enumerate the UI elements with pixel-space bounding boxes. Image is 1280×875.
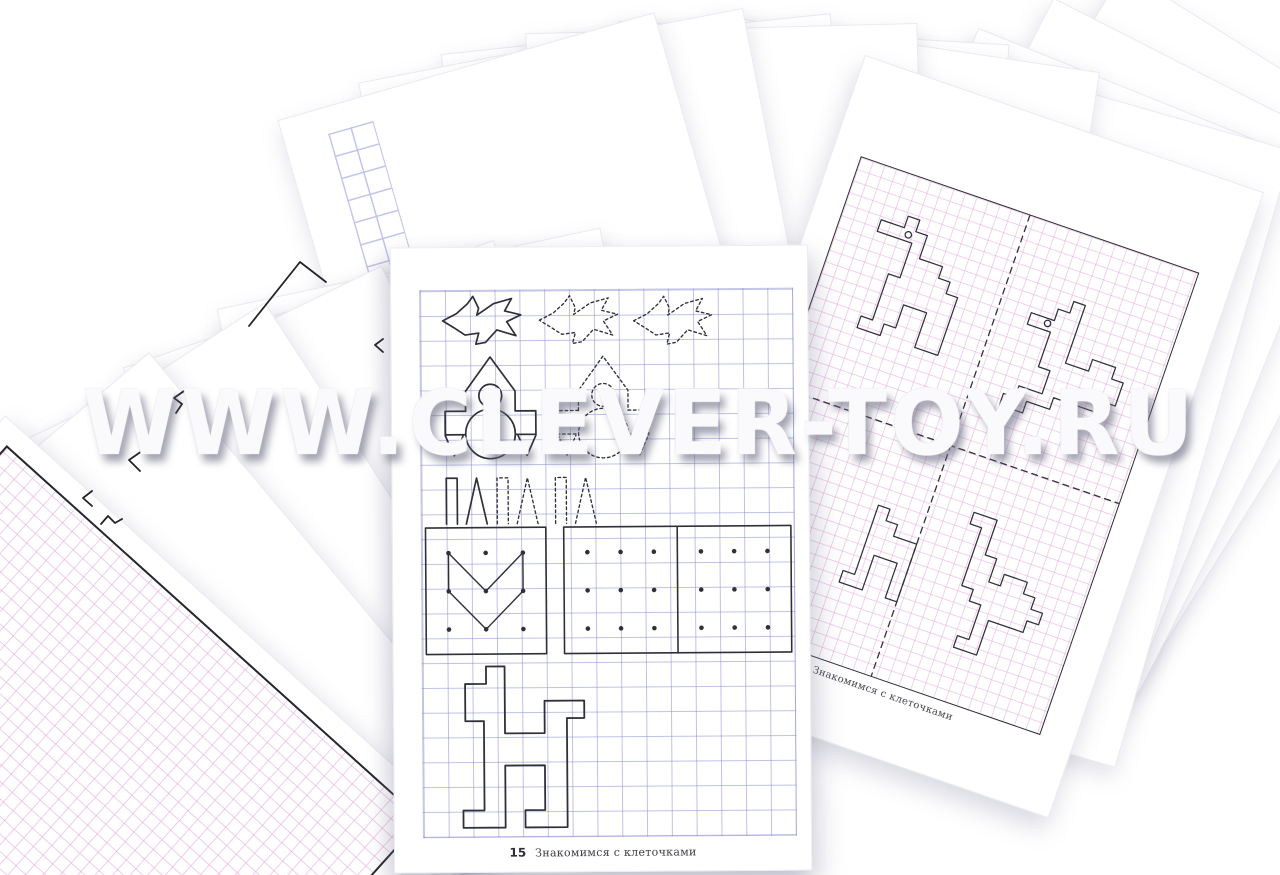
pixel-flamingo-figure xyxy=(930,512,1066,671)
pixel-dog-figure xyxy=(462,666,585,828)
fold-line-horizontal xyxy=(782,388,1119,504)
dot-box-practice xyxy=(564,525,792,653)
zigzag-legs-sample xyxy=(446,478,487,524)
bird-trace-2 xyxy=(633,296,711,344)
grid-area xyxy=(419,288,797,839)
pixel-half-figure xyxy=(839,501,924,602)
pencil-mark xyxy=(172,390,188,416)
rocket-trace xyxy=(557,356,649,458)
pencil-mark xyxy=(248,260,330,332)
pencil-mark xyxy=(82,490,96,508)
bird-sample xyxy=(442,296,520,344)
zigzag-legs-trace-2 xyxy=(555,477,596,523)
tracing-figures xyxy=(420,289,796,838)
page-caption: Знакомимся с клеточками xyxy=(535,845,697,859)
page-number: 15 xyxy=(509,846,526,860)
rocket-sample xyxy=(445,357,536,459)
pencil-mark xyxy=(128,450,146,474)
bird-trace-1 xyxy=(539,295,618,343)
dot-box-sample xyxy=(425,527,546,654)
pixel-duck-figure xyxy=(999,290,1143,441)
pencil-mark xyxy=(100,515,124,527)
worksheet-page-center: 15 Знакомимся с клеточками xyxy=(390,245,812,874)
zigzag-legs-trace-1 xyxy=(497,478,538,524)
photo-canvas: Знакомимся с клеточками 15 Знакомимся с … xyxy=(0,0,1280,875)
pencil-mark xyxy=(374,338,386,354)
page-footer: 15 Знакомимся с клеточками xyxy=(395,844,811,861)
pixel-horse-figure xyxy=(845,208,977,355)
